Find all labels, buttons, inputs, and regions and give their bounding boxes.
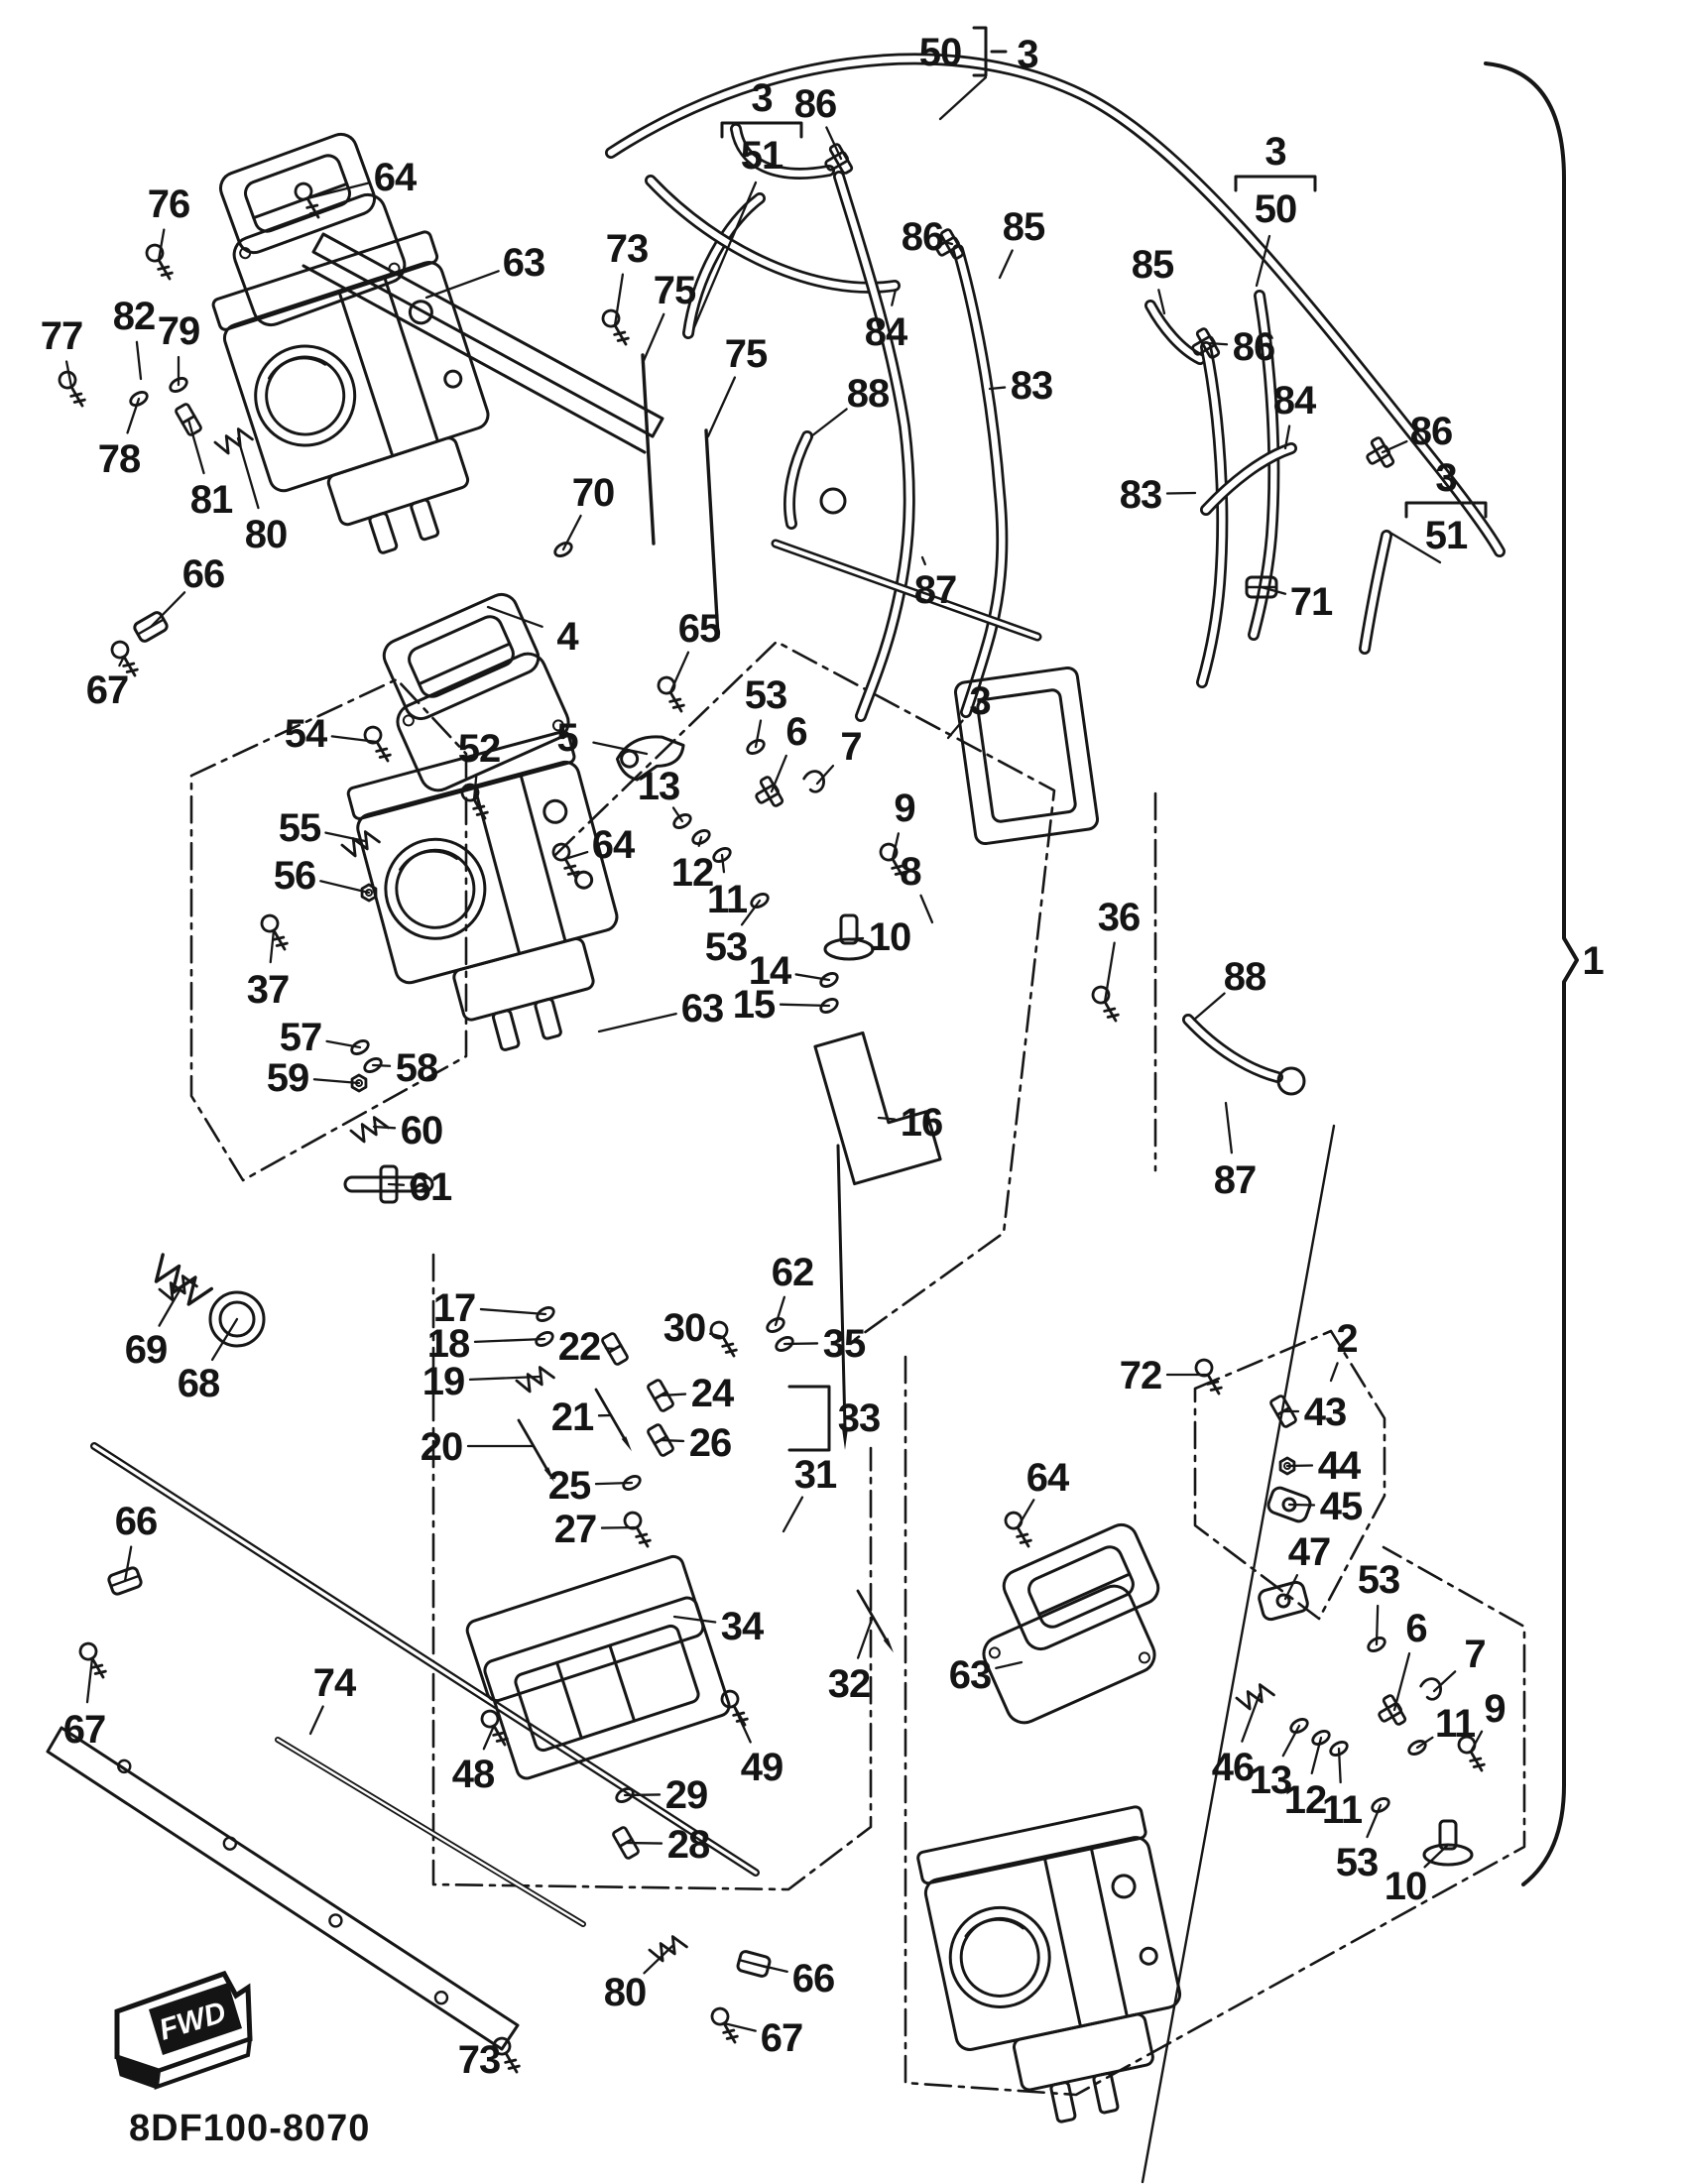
cover-outline xyxy=(216,130,379,257)
part-label: 29 xyxy=(665,1773,708,1817)
part-label: 65 xyxy=(678,607,721,651)
part-label: 77 xyxy=(41,314,83,358)
shaft-boss xyxy=(408,299,435,326)
shaft-boss xyxy=(542,798,568,825)
hose xyxy=(1188,1020,1277,1077)
leader-line xyxy=(922,557,925,564)
rod-75 xyxy=(706,430,718,637)
part-label: 60 xyxy=(401,1109,443,1153)
part-label: 3 xyxy=(1435,456,1456,500)
cover-dome xyxy=(406,613,518,700)
carb-top-flange xyxy=(212,230,439,331)
drain-tube xyxy=(535,999,561,1039)
leader-line xyxy=(849,938,863,939)
part-label: 3 xyxy=(751,76,772,120)
leader-line xyxy=(426,271,499,298)
carburetor-2 xyxy=(347,730,644,1071)
part-label: 81 xyxy=(190,478,233,522)
part-glyph-screw xyxy=(362,724,395,765)
part-label: 1 xyxy=(1582,939,1604,983)
leader-line xyxy=(481,1309,545,1314)
part-label: 32 xyxy=(828,1662,871,1706)
venturi-bore xyxy=(243,333,368,458)
part-label: 73 xyxy=(458,2038,501,2082)
part-glyph-screw xyxy=(57,369,89,410)
part-label: 4 xyxy=(556,615,579,659)
part-label: 16 xyxy=(901,1101,943,1145)
part-label: 31 xyxy=(794,1453,837,1497)
part-label: 15 xyxy=(733,983,776,1027)
float-bowl-34 xyxy=(482,1595,731,1780)
exploded-parts-diagram: 7664637782797881806667737575704868685848… xyxy=(0,0,1686,2184)
cover-ridge xyxy=(254,183,347,217)
part-outline xyxy=(482,1595,731,1780)
hose-bore xyxy=(611,59,1500,551)
leader-line xyxy=(940,77,986,119)
part-label: 47 xyxy=(1288,1530,1331,1574)
part-glyph-screw xyxy=(719,1688,752,1729)
part-label: 55 xyxy=(279,806,321,850)
part-label: 2 xyxy=(1336,1317,1357,1361)
part-glyph-tee xyxy=(1362,436,1395,473)
leader-line xyxy=(1194,994,1225,1020)
part-label: 71 xyxy=(1290,580,1333,624)
part-label: 54 xyxy=(285,712,328,756)
part-outline xyxy=(465,1554,706,1703)
part-glyph-screw xyxy=(77,1640,110,1681)
part-label: 36 xyxy=(1098,896,1141,939)
strip-hole xyxy=(329,1914,341,1926)
leader-line xyxy=(948,243,952,244)
cover-ridge xyxy=(1039,1574,1130,1615)
leader-line xyxy=(1285,1575,1297,1599)
part-label: 11 xyxy=(707,878,748,921)
cover-ridge xyxy=(420,644,510,684)
rod-highlight xyxy=(278,1740,583,1924)
leader-line xyxy=(125,1547,131,1581)
bowl-flange xyxy=(1013,2013,1154,2092)
venturi-bore xyxy=(941,1898,1059,2016)
hose-clamp-88 xyxy=(1278,1068,1304,1094)
leader-line xyxy=(1226,1103,1232,1153)
leader-line xyxy=(1000,251,1013,278)
leader-line xyxy=(271,930,274,962)
part-glyph-spring xyxy=(342,828,379,859)
leader-line xyxy=(754,1964,787,1972)
part-label: 51 xyxy=(741,134,783,178)
part-label: 86 xyxy=(902,215,944,259)
leader-line xyxy=(990,388,1005,389)
leader-line xyxy=(484,1726,494,1749)
part-glyph-spring xyxy=(650,1933,686,1964)
part-label: 44 xyxy=(1318,1444,1362,1488)
hose-clamp-88 xyxy=(821,489,845,513)
part-label: 86 xyxy=(1410,410,1453,453)
leader-line xyxy=(783,1498,802,1531)
part-glyph-hook xyxy=(1420,1675,1445,1701)
carb1-cover xyxy=(216,130,379,257)
sync-rod-74-highlight xyxy=(94,1446,756,1873)
part-glyph-tee xyxy=(1374,1694,1407,1731)
part-glyph-needle xyxy=(594,1389,635,1453)
body-line xyxy=(385,278,437,439)
part-label: 50 xyxy=(919,31,962,74)
part-label: 3 xyxy=(969,679,990,723)
part-outline xyxy=(392,648,574,795)
lever-bracket xyxy=(1258,1581,1309,1622)
fuel-rail-edge xyxy=(303,266,645,452)
part-glyph-screw xyxy=(1090,984,1123,1025)
venturi-bore-inner xyxy=(388,841,483,936)
part-outline xyxy=(1258,1581,1309,1622)
part-label: 64 xyxy=(374,156,418,199)
leader-line xyxy=(811,409,847,436)
leader-line xyxy=(374,1127,395,1128)
leader-line xyxy=(1331,1363,1338,1381)
part-glyph-screw xyxy=(1003,1510,1035,1550)
part-label: 58 xyxy=(396,1046,438,1090)
hose-bore xyxy=(839,177,909,716)
part-label: 62 xyxy=(772,1251,814,1294)
part-label: 6 xyxy=(1405,1607,1426,1650)
part-label: 24 xyxy=(691,1372,735,1415)
fwd-arrow: FWD xyxy=(117,1974,250,2087)
leader-line xyxy=(722,855,724,872)
part-label: 25 xyxy=(548,1464,591,1508)
leader-line xyxy=(708,378,735,436)
part-label: 66 xyxy=(182,552,225,596)
drain-tube xyxy=(1050,2082,1076,2123)
leader-line xyxy=(151,592,184,627)
bowl-flange xyxy=(452,937,595,1022)
gasket-hole xyxy=(239,247,252,260)
leader-line xyxy=(674,1617,715,1622)
long-leader-line xyxy=(1143,1126,1334,2182)
part-label: 8 xyxy=(900,850,921,894)
part-label: 75 xyxy=(654,269,696,312)
leader-line xyxy=(817,766,833,784)
part-glyph-jet xyxy=(1269,1395,1296,1428)
part-label: 61 xyxy=(410,1165,452,1209)
part-label: 88 xyxy=(847,372,890,416)
part-label: 88 xyxy=(1224,955,1266,999)
bowl-flange xyxy=(326,436,469,527)
part-label: 52 xyxy=(458,727,501,771)
part-glyph-screw xyxy=(1193,1357,1226,1397)
part-label: 10 xyxy=(869,915,911,959)
leader-line xyxy=(310,1707,323,1734)
part-label: 76 xyxy=(148,182,190,226)
diagram-callouts: 7664637782797881806667737575704868685848… xyxy=(41,28,1605,2082)
part-label: 59 xyxy=(267,1056,309,1100)
part-label: 3 xyxy=(1017,33,1037,76)
part-label: 79 xyxy=(158,309,200,353)
part-label: 64 xyxy=(592,823,636,867)
part-glyph-screw xyxy=(622,1510,655,1550)
part-label: 66 xyxy=(115,1500,158,1543)
part-label: 10 xyxy=(1385,1865,1427,1908)
body-line xyxy=(339,293,392,454)
part-label: 20 xyxy=(421,1425,463,1469)
part-label: 86 xyxy=(1233,325,1275,369)
part-label: 69 xyxy=(125,1328,168,1372)
leader-line xyxy=(475,1339,544,1342)
part-label: 11 xyxy=(1435,1702,1476,1746)
part-label: 5 xyxy=(556,716,578,760)
part-label: 34 xyxy=(721,1605,765,1648)
part-outline xyxy=(978,1580,1160,1728)
body-line xyxy=(1091,1849,1127,2014)
part-glyph-screw xyxy=(144,242,177,283)
part-label: 27 xyxy=(554,1508,597,1551)
part-label: 6 xyxy=(785,710,806,754)
part-glyph-screw xyxy=(259,912,292,953)
part-label: 13 xyxy=(638,765,680,808)
part-label: 53 xyxy=(705,925,748,969)
part-glyph-hook xyxy=(803,768,828,793)
part-label: 30 xyxy=(663,1306,706,1350)
part-label: 85 xyxy=(1132,243,1174,287)
part-label: 63 xyxy=(681,987,724,1031)
fuel-joint-10 xyxy=(1424,1821,1472,1865)
part-label: 80 xyxy=(245,513,288,556)
cover-gasket xyxy=(392,648,574,795)
body-line xyxy=(1044,1859,1080,2024)
part-glyph-screw xyxy=(708,1319,741,1360)
part-glyph-spring xyxy=(517,1364,553,1395)
part-label: 67 xyxy=(63,1708,106,1752)
part-label: 84 xyxy=(865,310,908,354)
part-label: 83 xyxy=(1120,473,1162,517)
part-label: 3 xyxy=(1264,130,1285,174)
part-glyph-jet xyxy=(647,1424,673,1457)
part-label: 11 xyxy=(1322,1788,1363,1832)
jet-needle-23 xyxy=(838,1146,845,1428)
part-label: 56 xyxy=(274,854,316,898)
assembly-boundary xyxy=(905,1357,1524,2095)
part-label: 74 xyxy=(313,1661,357,1705)
leader-line xyxy=(1208,343,1227,344)
part-label: 43 xyxy=(1304,1391,1347,1434)
part-label: 46 xyxy=(1212,1746,1255,1789)
part-label: 82 xyxy=(113,295,156,338)
part-glyph-jet xyxy=(612,1827,639,1860)
part-label: 68 xyxy=(178,1362,220,1405)
spring-69 xyxy=(148,1255,211,1310)
part-glyph-jet xyxy=(601,1333,628,1366)
part-label: 9 xyxy=(1484,1687,1505,1731)
part-label: 83 xyxy=(1011,364,1053,408)
boss xyxy=(443,369,463,389)
fuel-joint-10 xyxy=(825,915,873,959)
part-label: 70 xyxy=(572,471,615,515)
assembly-boundary xyxy=(191,679,466,1180)
part-label: 21 xyxy=(551,1395,594,1439)
part-glyph-tee xyxy=(751,776,784,812)
part-label: 48 xyxy=(452,1753,495,1796)
part-label: 49 xyxy=(741,1746,783,1789)
part-label: 35 xyxy=(823,1322,866,1366)
leader-line xyxy=(389,1184,404,1185)
part-code: 8DF100-8070 xyxy=(129,2108,370,2149)
part-label: 57 xyxy=(280,1016,322,1059)
leader-line xyxy=(1167,493,1195,494)
hose xyxy=(611,59,1500,551)
part-label: 67 xyxy=(761,2016,803,2060)
leader-line xyxy=(784,1343,817,1344)
part-label: 53 xyxy=(1336,1841,1379,1884)
part-label: 28 xyxy=(667,1823,710,1867)
part-glyph-screw xyxy=(600,307,633,348)
part-label: 85 xyxy=(1003,205,1045,249)
bracket-33 xyxy=(789,1387,829,1450)
drain-tube xyxy=(1093,2073,1119,2114)
carb-top-flange xyxy=(917,1806,1147,1884)
part-label: 87 xyxy=(914,568,957,612)
part-label: 63 xyxy=(503,241,545,285)
part-label: 73 xyxy=(606,227,649,271)
leader-line xyxy=(661,1440,683,1441)
leader-line xyxy=(599,1014,676,1031)
shaft-boss xyxy=(1111,1874,1137,1899)
gasket-hole xyxy=(1138,1651,1150,1664)
part-glyph-screw xyxy=(1456,1734,1489,1774)
part-label: 7 xyxy=(840,725,861,769)
part-label: 53 xyxy=(1358,1558,1400,1602)
part-glyph-screw xyxy=(459,782,492,822)
leader-line xyxy=(643,314,663,363)
rod-75 xyxy=(643,355,654,544)
leader-line xyxy=(238,438,258,508)
leader-line xyxy=(996,1662,1022,1668)
bracket-group: 351 xyxy=(694,76,801,327)
part-label: 86 xyxy=(794,82,837,126)
part-label: 9 xyxy=(894,787,914,830)
cover-gasket xyxy=(978,1580,1160,1728)
group-1-brace xyxy=(1486,63,1577,1884)
leader-line xyxy=(212,1319,237,1360)
part-label: 33 xyxy=(838,1396,881,1440)
leader-line xyxy=(87,1658,92,1702)
drain-tube xyxy=(411,499,439,541)
part-label: 78 xyxy=(98,437,141,481)
part-glyph-spring xyxy=(215,425,252,456)
part-label: 67 xyxy=(86,668,129,712)
part-label: 84 xyxy=(1273,379,1317,423)
parts-diagram-page: 7664637782797881806667737575704868685848… xyxy=(0,0,1686,2184)
part-label: 63 xyxy=(949,1653,992,1697)
leader-line xyxy=(1242,1694,1260,1742)
part-label: 72 xyxy=(1120,1354,1162,1397)
part-label: 19 xyxy=(422,1360,465,1403)
leader-line xyxy=(756,721,761,747)
bracket-group: 503 xyxy=(919,28,1038,119)
venturi-bore xyxy=(375,828,496,949)
part-label: 22 xyxy=(558,1325,601,1369)
part-label: 37 xyxy=(247,968,290,1012)
part-label: 87 xyxy=(1214,1158,1257,1202)
part-label: 80 xyxy=(604,1971,647,2014)
part-label: 7 xyxy=(1464,1633,1485,1676)
boss xyxy=(1140,1947,1158,1966)
drain-tube xyxy=(493,1010,520,1050)
drain-tube xyxy=(369,513,398,554)
part-label: 26 xyxy=(689,1421,732,1465)
part-glyph-screw xyxy=(656,674,688,715)
hose-bore xyxy=(1365,536,1386,649)
venturi-bore-inner xyxy=(954,1911,1046,2003)
leader-line xyxy=(137,342,141,379)
part-label: 66 xyxy=(792,1957,835,2001)
part-label: 45 xyxy=(1320,1485,1363,1528)
part-label: 53 xyxy=(745,673,787,717)
strip-hole xyxy=(435,1992,447,2003)
part-glyph-jet xyxy=(647,1380,673,1412)
leader-line xyxy=(625,1794,660,1795)
hose-bore xyxy=(789,436,807,524)
part-label: 50 xyxy=(1255,187,1297,231)
part-label: 75 xyxy=(725,332,768,376)
part-label: 51 xyxy=(1425,514,1468,557)
leader-line xyxy=(626,1843,662,1844)
leader-line xyxy=(879,1118,895,1119)
leader-line xyxy=(596,1483,632,1484)
part-label: 64 xyxy=(1026,1456,1070,1500)
part-label: 12 xyxy=(1284,1778,1327,1822)
hose xyxy=(839,177,909,716)
bowl-gasket xyxy=(465,1554,706,1703)
leader-line xyxy=(921,896,932,922)
part-glyph-jet xyxy=(175,404,201,436)
